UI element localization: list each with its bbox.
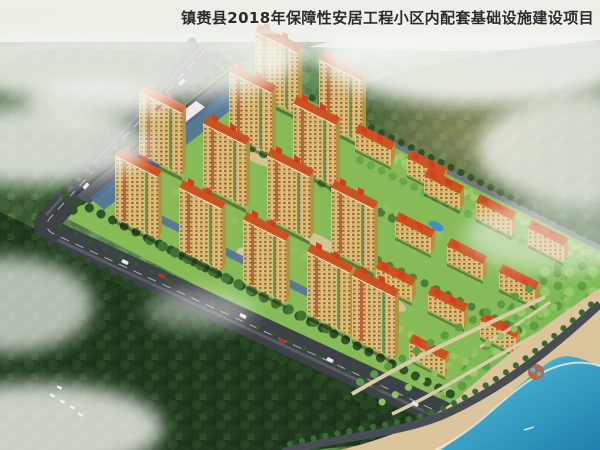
project-title: 镇赉县2018年保障性安居工程小区内配套基础设施建设项目 xyxy=(181,7,594,28)
rendering-scene xyxy=(0,0,600,450)
architectural-rendering: 镇赉县2018年保障性安居工程小区内配套基础设施建设项目 xyxy=(0,0,600,450)
